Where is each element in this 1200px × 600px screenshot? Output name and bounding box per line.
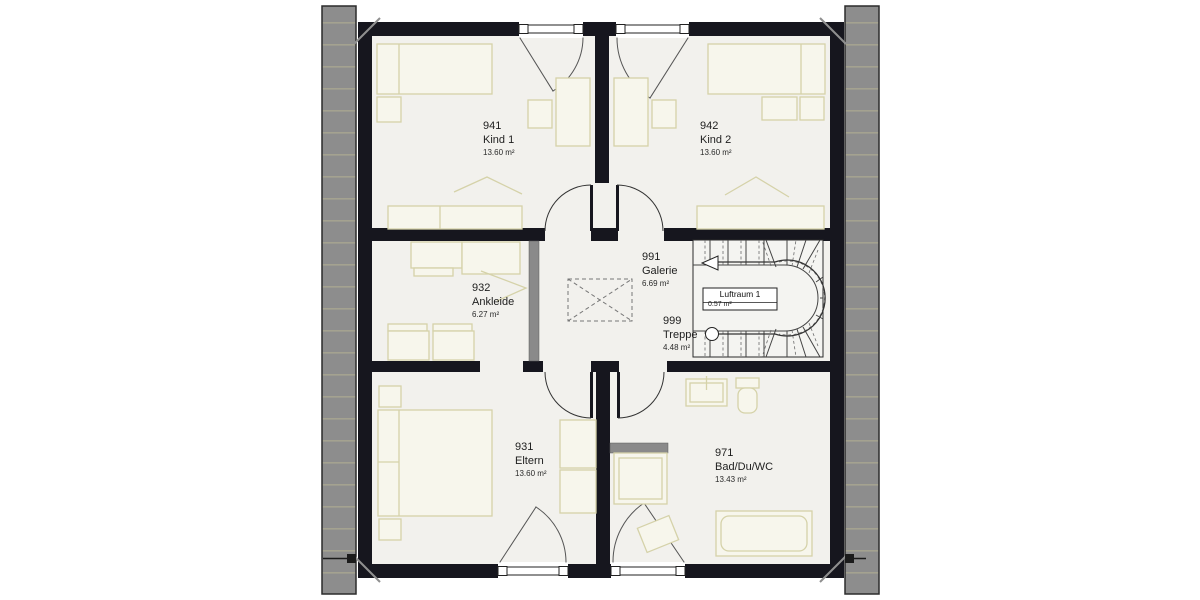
room-area: 4.48 m²: [663, 343, 697, 353]
wardrobe-eltern: [560, 470, 596, 513]
void-area: 0.57 m²: [703, 301, 777, 309]
wall-low-cap: [523, 361, 543, 372]
room-number: 971: [715, 447, 773, 461]
wall-mid-left: [372, 228, 545, 241]
room-area: 13.60 m²: [700, 148, 732, 158]
window-jamb: [611, 567, 620, 576]
room-label-bad: 971 Bad/Du/WC 13.43 m²: [715, 447, 773, 485]
window-jamb: [616, 25, 625, 34]
window-frame: [616, 25, 689, 33]
room-area: 13.60 m²: [515, 469, 547, 479]
closet-unit: [462, 242, 520, 274]
dresser: [762, 97, 797, 120]
wall-mid-stub: [591, 228, 618, 241]
wall-low-left: [372, 361, 480, 372]
wc-cistern: [736, 378, 759, 388]
room-area: 6.27 m²: [472, 310, 514, 320]
room-number: 941: [483, 120, 515, 134]
closet-unit: [411, 242, 462, 268]
room-label-treppe: 999 Treppe 4.48 m²: [663, 315, 697, 353]
window-frame: [519, 25, 583, 33]
room-area: 13.43 m²: [715, 475, 773, 485]
floorplan-drawing: [0, 0, 1200, 600]
room-area: 6.69 m²: [642, 279, 677, 289]
wall-low-right: [667, 361, 830, 372]
room-label-ankleide: 932 Ankleide 6.27 m²: [472, 282, 514, 320]
window-frame: [498, 567, 568, 575]
room-name: Kind 1: [483, 134, 515, 148]
wardrobe-kind1: [388, 206, 522, 229]
nightstand: [377, 97, 401, 122]
room-label-eltern: 931 Eltern 13.60 m²: [515, 441, 547, 479]
nightstand: [379, 519, 401, 540]
room-name: Treppe: [663, 329, 697, 343]
bathtub-inner: [721, 516, 807, 551]
closet-top: [388, 324, 427, 331]
desk-kind1: [556, 78, 590, 146]
bed-kind1: [377, 44, 492, 94]
room-name: Eltern: [515, 455, 547, 469]
wall-eltern-bad: [596, 372, 610, 564]
partition-shower: [610, 443, 668, 453]
room-number: 931: [515, 441, 547, 455]
eave-tick-left: [347, 554, 356, 563]
room-area: 13.60 m²: [483, 148, 515, 158]
room-name: Bad/Du/WC: [715, 461, 773, 475]
wardrobe-eltern: [560, 420, 596, 468]
void-label-luftraum: Luftraum 1 0.57 m²: [703, 287, 777, 310]
window-jamb: [676, 567, 685, 576]
shower-inner: [619, 458, 662, 499]
wardrobe-kind2: [697, 206, 824, 229]
room-number: 942: [700, 120, 732, 134]
window-jamb: [498, 567, 507, 576]
room-number: 932: [472, 282, 514, 296]
window-jamb: [574, 25, 583, 34]
eave-tick-right: [845, 554, 854, 563]
room-number: 999: [663, 315, 697, 329]
wall-mid-right: [664, 228, 830, 241]
wc-bowl: [738, 388, 757, 413]
closet-unit: [433, 331, 474, 360]
nightstand: [379, 386, 401, 407]
floorplan-canvas: 941 Kind 1 13.60 m² 942 Kind 2 13.60 m² …: [0, 0, 1200, 600]
bed-kind2: [708, 44, 825, 94]
wall-low-stub: [591, 361, 619, 372]
void-name: Luftraum 1: [703, 287, 777, 301]
closet-tray: [414, 268, 453, 276]
room-name: Galerie: [642, 265, 677, 279]
roof-strip-left: [322, 6, 356, 594]
window-frame: [611, 567, 685, 575]
room-label-kind1: 941 Kind 1 13.60 m²: [483, 120, 515, 158]
closet-top: [433, 324, 472, 331]
chair-kind1: [528, 100, 552, 128]
wall-kind1-kind2: [595, 36, 609, 183]
desk-kind2: [614, 78, 648, 146]
room-number: 991: [642, 251, 677, 265]
room-label-galerie: 991 Galerie 6.69 m²: [642, 251, 677, 289]
room-label-kind2: 942 Kind 2 13.60 m²: [700, 120, 732, 158]
partition-ankleide: [529, 241, 539, 361]
stair-start-circle: [706, 328, 719, 341]
window-jamb: [680, 25, 689, 34]
nightstand: [800, 97, 824, 120]
bed-eltern: [378, 410, 492, 516]
roof-strip-right: [845, 6, 879, 594]
chair-kind2: [652, 100, 676, 128]
room-name: Kind 2: [700, 134, 732, 148]
room-name: Ankleide: [472, 296, 514, 310]
window-jamb: [559, 567, 568, 576]
closet-unit: [388, 331, 429, 360]
window-jamb: [519, 25, 528, 34]
